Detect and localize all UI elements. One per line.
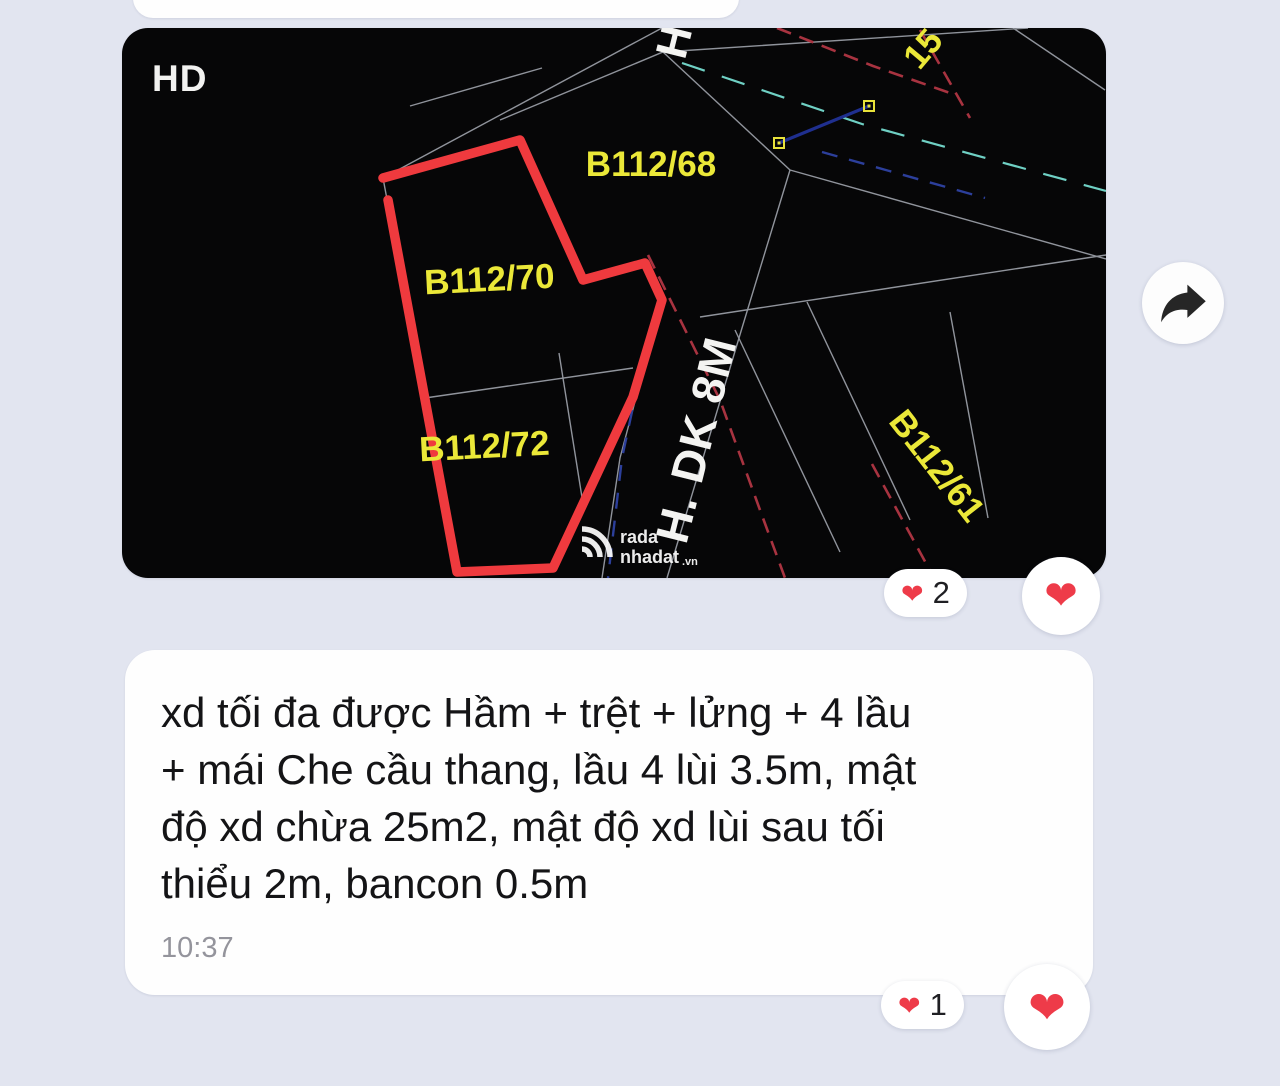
- heart-icon: ❤: [1028, 985, 1066, 1030]
- message-line: xd tối đa được Hầm + trệt + lửng + 4 lầu: [161, 684, 1063, 741]
- highlighted-plot-outline: [383, 140, 662, 572]
- forward-button[interactable]: [1142, 262, 1224, 344]
- chat-background: B112/68 B112/70 B112/72 B112/61 15 H. DK…: [0, 0, 1280, 1086]
- watermark-word2: nhadat: [620, 547, 679, 567]
- message-text: xd tối đa được Hầm + trệt + lửng + 4 lầu…: [125, 650, 1093, 912]
- text-message-bubble[interactable]: xd tối đa được Hầm + trệt + lửng + 4 lầu…: [125, 650, 1093, 995]
- map-image-message[interactable]: B112/68 B112/70 B112/72 B112/61 15 H. DK…: [122, 28, 1106, 578]
- teal-dashed-centerline: [682, 63, 1106, 191]
- text-reaction-badge[interactable]: ❤ 1: [881, 981, 964, 1029]
- parcel-label-b112-72: B112/72: [418, 424, 550, 470]
- parcel-lines: [383, 28, 1106, 578]
- message-timestamp: 10:37: [125, 912, 1093, 965]
- heart-icon: ❤: [1044, 576, 1078, 616]
- cadastral-map: B112/68 B112/70 B112/72 B112/61 15 H. DK…: [122, 28, 1106, 578]
- message-line: + mái Che cầu thang, lầu 4 lùi 3.5m, mật: [161, 741, 1063, 798]
- parcel-label-b112-70: B112/70: [423, 257, 555, 303]
- forward-arrow-icon: [1155, 278, 1211, 328]
- message-line: độ xd chừa 25m2, mật độ xd lùi sau tối: [161, 798, 1063, 855]
- watermark-suffix: .vn: [682, 556, 698, 568]
- parcel-label-b112-68: B112/68: [586, 145, 716, 184]
- text-quick-react-button[interactable]: ❤: [1004, 964, 1090, 1050]
- message-line: thiểu 2m, bancon 0.5m: [161, 855, 1063, 912]
- parcel-label-15-partial: 15: [896, 28, 951, 76]
- previous-message-bubble: [133, 0, 739, 18]
- road-label-h-dk-8m: H. DK 8M: [645, 332, 746, 548]
- reaction-count: 1: [930, 987, 947, 1023]
- hd-badge: HD: [152, 58, 207, 99]
- watermark-word1: rada: [620, 527, 659, 547]
- reaction-count: 2: [933, 575, 950, 611]
- map-quick-react-button[interactable]: ❤: [1022, 557, 1100, 635]
- navy-segment: [779, 106, 869, 143]
- map-reaction-badge[interactable]: ❤ 2: [884, 569, 967, 617]
- heart-icon: ❤: [898, 993, 921, 1020]
- heart-icon: ❤: [901, 581, 924, 608]
- road-label-partial-h: H: [647, 28, 702, 63]
